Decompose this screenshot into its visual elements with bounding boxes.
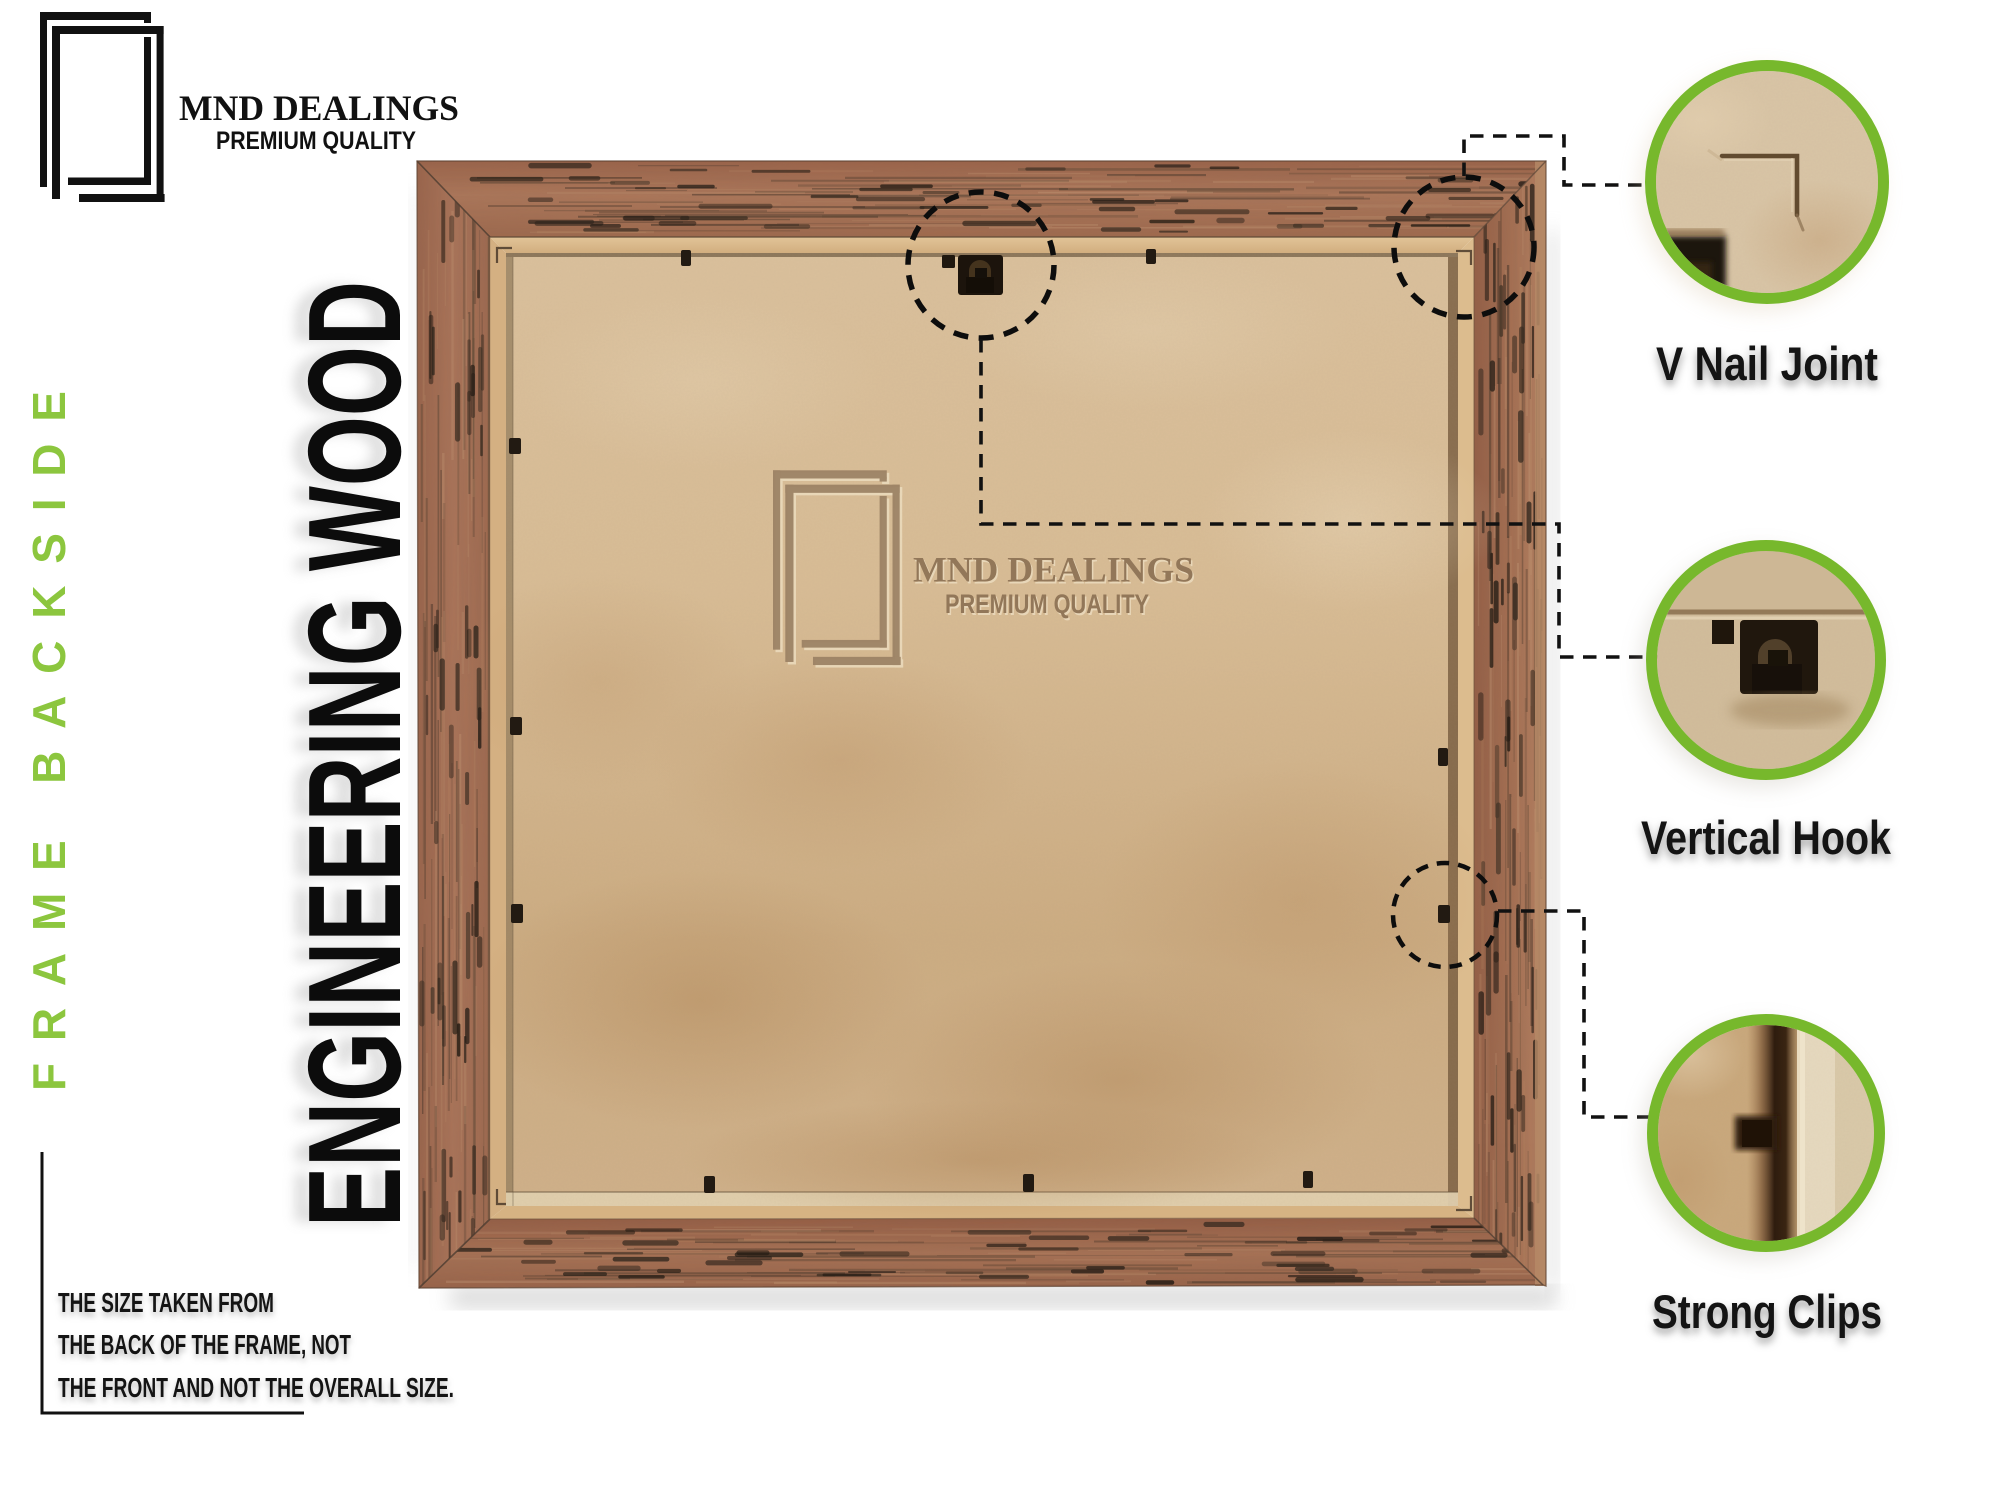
svg-text:V Nail Joint: V Nail Joint [1656, 337, 1878, 390]
svg-text:Vertical Hook: Vertical Hook [1641, 811, 1892, 864]
svg-text:MND DEALINGS: MND DEALINGS [913, 550, 1194, 590]
svg-text:PREMIUM QUALITY: PREMIUM QUALITY [216, 127, 416, 155]
svg-text:THE SIZE TAKEN FROM: THE SIZE TAKEN FROM [58, 1287, 274, 1318]
svg-text:MND DEALINGS: MND DEALINGS [179, 88, 459, 128]
svg-text:ENGINEERING WOOD: ENGINEERING WOOD [281, 281, 428, 1227]
svg-text:PREMIUM QUALITY: PREMIUM QUALITY [945, 589, 1149, 619]
svg-text:THE BACK OF THE FRAME, NOT: THE BACK OF THE FRAME, NOT [58, 1329, 351, 1360]
svg-text:THE FRONT AND NOT THE OVERALL: THE FRONT AND NOT THE OVERALL SIZE. [58, 1372, 454, 1403]
svg-text:Strong Clips: Strong Clips [1652, 1285, 1882, 1338]
